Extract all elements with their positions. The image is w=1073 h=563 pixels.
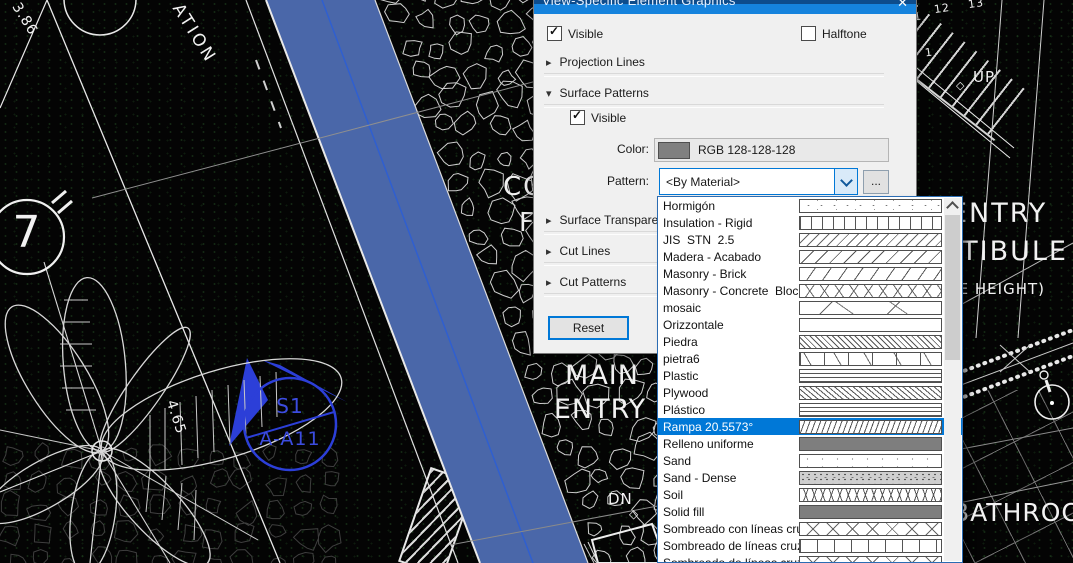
pattern-option[interactable]: Plywood [658, 384, 962, 401]
color-swatch [658, 142, 690, 159]
grid-bubble-number: 7 [0, 207, 60, 258]
fixture-symbol [1035, 371, 1069, 419]
pattern-swatch [799, 284, 942, 298]
pattern-swatch [799, 420, 942, 434]
pattern-combobox[interactable]: <By Material> [659, 168, 858, 195]
checkbox-visible[interactable]: Visible [547, 26, 603, 41]
pattern-option[interactable]: Sand [658, 452, 962, 469]
pattern-option[interactable]: Relleno uniforme [658, 435, 962, 452]
main-entry-label-1: MAIN [556, 360, 648, 391]
pattern-swatch [799, 386, 942, 400]
browse-pattern-button[interactable]: ... [863, 170, 889, 194]
pattern-option[interactable]: Soil [658, 486, 962, 503]
checkbox-box[interactable] [801, 26, 816, 41]
section-label: Surface Patterns [560, 86, 649, 100]
pattern-swatch [799, 437, 942, 451]
color-label: Color: [554, 142, 649, 156]
checkbox-box[interactable] [570, 110, 585, 125]
section-projection-lines[interactable]: Projection Lines [546, 55, 645, 69]
up-label: UP [973, 68, 995, 86]
checkbox-label: Halftone [822, 27, 867, 41]
close-icon[interactable]: ✕ [897, 0, 908, 11]
pattern-option[interactable]: Hormigón [658, 197, 962, 214]
pattern-option[interactable]: Rampa 20.5573° [658, 418, 962, 435]
pattern-name: Sombreado de líneas cruz... [663, 556, 799, 563]
pattern-swatch [799, 369, 942, 383]
pattern-swatch [799, 403, 942, 417]
pattern-option[interactable]: Masonry - Brick [658, 265, 962, 282]
separator [544, 104, 884, 108]
chevron-down-icon [840, 174, 853, 187]
pattern-name: Madera - Acabado [663, 250, 799, 264]
pattern-option[interactable]: Madera - Acabado [658, 248, 962, 265]
pattern-name: Plywood [663, 386, 799, 400]
pattern-name: Masonry - Concrete Block [663, 284, 799, 298]
pattern-name: Insulation - Rigid [663, 216, 799, 230]
pattern-name: Sand - Dense [663, 471, 799, 485]
screen: 7 A-A13 3.86 ATION 4.65 S1 A-A11 MAIN EN… [0, 0, 1073, 563]
pattern-option[interactable]: Masonry - Concrete Block [658, 282, 962, 299]
pattern-name: Plastic [663, 369, 799, 383]
section-marker-bottom-label: A-A11 [252, 428, 328, 450]
pattern-name: mosaic [663, 301, 799, 315]
pattern-option[interactable]: Sombreado de líneas cruz... [658, 537, 962, 554]
scroll-up-button[interactable] [944, 198, 961, 214]
window-titlebar: View-Specific Element Graphics ✕ [534, 0, 916, 14]
pattern-name: JIS STN 2.5 [663, 233, 799, 247]
pattern-name: Plástico [663, 403, 799, 417]
separator [544, 73, 884, 77]
pattern-name: Soil [663, 488, 799, 502]
pattern-swatch [799, 471, 942, 485]
scroll-thumb[interactable] [945, 215, 960, 360]
pattern-option[interactable]: Plástico [658, 401, 962, 418]
pattern-option[interactable]: Orizzontale [658, 316, 962, 333]
checkbox-halftone[interactable]: Halftone [801, 26, 867, 41]
pattern-name: Sombreado con líneas cru... [663, 522, 799, 536]
pattern-swatch [799, 250, 942, 264]
pattern-option[interactable]: pietra6 [658, 350, 962, 367]
pattern-option[interactable]: mosaic [658, 299, 962, 316]
pattern-name: Sand [663, 454, 799, 468]
pattern-swatch [799, 522, 942, 536]
color-value: RGB 128-128-128 [698, 143, 795, 157]
pattern-swatch [799, 556, 942, 563]
pattern-swatch [799, 454, 942, 468]
checkbox-surface-visible[interactable]: Visible [570, 110, 626, 125]
chevron-up-icon [946, 201, 959, 214]
pattern-swatch [799, 335, 942, 349]
pattern-option[interactable]: Sand - Dense [658, 469, 962, 486]
pattern-name: pietra6 [663, 352, 799, 366]
expander-icon[interactable] [546, 213, 552, 227]
pattern-option[interactable]: Solid fill [658, 503, 962, 520]
pattern-swatch [799, 539, 942, 553]
section-label: Projection Lines [560, 55, 645, 69]
color-field[interactable]: RGB 128-128-128 [654, 138, 889, 162]
pattern-option[interactable]: Sombreado con líneas cru... [658, 520, 962, 537]
checkbox-label: Visible [591, 111, 626, 125]
ramp-centerline [322, 0, 533, 563]
expander-icon[interactable] [546, 55, 552, 69]
expander-icon[interactable] [546, 86, 552, 100]
entry-label: ENTRY [950, 198, 1047, 229]
pattern-options: HormigónInsulation - RigidJIS STN 2.5Mad… [658, 197, 962, 563]
pattern-name: Piedra [663, 335, 799, 349]
pattern-option[interactable]: JIS STN 2.5 [658, 231, 962, 248]
pattern-swatch [799, 267, 942, 281]
section-label: Cut Patterns [560, 275, 627, 289]
window-title: View-Specific Element Graphics [542, 0, 736, 8]
combobox-value: <By Material> [660, 175, 834, 189]
pattern-name: Masonry - Brick [663, 267, 799, 281]
pattern-name: Relleno uniforme [663, 437, 799, 451]
stair-number: 1 [924, 46, 934, 60]
checkbox-label: Visible [568, 27, 603, 41]
section-marker-top-label: S1 [268, 394, 312, 418]
bathroom-label: BATHROO [952, 498, 1073, 527]
pattern-option[interactable]: Sombreado de líneas cruz... [658, 554, 962, 563]
pattern-swatch [799, 318, 942, 332]
pattern-name: Sombreado de líneas cruz... [663, 539, 799, 553]
detail-bubble-label: A-A13 [76, 0, 126, 3]
pattern-swatch [799, 505, 942, 519]
pattern-name: Hormigón [663, 199, 799, 213]
pattern-swatch [799, 216, 942, 230]
reset-button[interactable]: Reset [548, 316, 629, 340]
pattern-swatch [799, 301, 942, 315]
stair-number: 12 [933, 1, 951, 16]
section-cut-patterns[interactable]: Cut Patterns [546, 275, 626, 289]
pattern-option[interactable]: Plastic [658, 367, 962, 384]
pattern-label: Pattern: [554, 174, 649, 188]
expander-icon[interactable] [546, 275, 552, 289]
pattern-name: Rampa 20.5573° [663, 420, 799, 434]
pattern-dropdown-list[interactable]: HormigónInsulation - RigidJIS STN 2.5Mad… [657, 196, 963, 563]
section-label: Cut Lines [560, 244, 611, 258]
pattern-name: Orizzontale [663, 318, 799, 332]
detail-bubble [64, 0, 136, 35]
section-surface-patterns[interactable]: Surface Patterns [546, 86, 649, 100]
combobox-arrow[interactable] [834, 169, 857, 194]
pattern-name: Solid fill [663, 505, 799, 519]
expander-icon[interactable] [546, 244, 552, 258]
checkbox-box[interactable] [547, 26, 562, 41]
section-cut-lines[interactable]: Cut Lines [546, 244, 610, 258]
pattern-swatch [799, 199, 942, 213]
scrollbar[interactable] [944, 198, 961, 561]
pattern-option[interactable]: Piedra [658, 333, 962, 350]
pattern-swatch [799, 352, 942, 366]
up-diamond-icon: ◇ [956, 79, 965, 92]
pattern-option[interactable]: Insulation - Rigid [658, 214, 962, 231]
pattern-swatch [799, 233, 942, 247]
railing-beaded [945, 330, 1073, 378]
dn-diamond-icon: ◇ [629, 507, 639, 521]
pattern-swatch [799, 488, 942, 502]
dn-label: DN [608, 490, 633, 508]
main-entry-label-2: ENTRY [548, 394, 652, 425]
